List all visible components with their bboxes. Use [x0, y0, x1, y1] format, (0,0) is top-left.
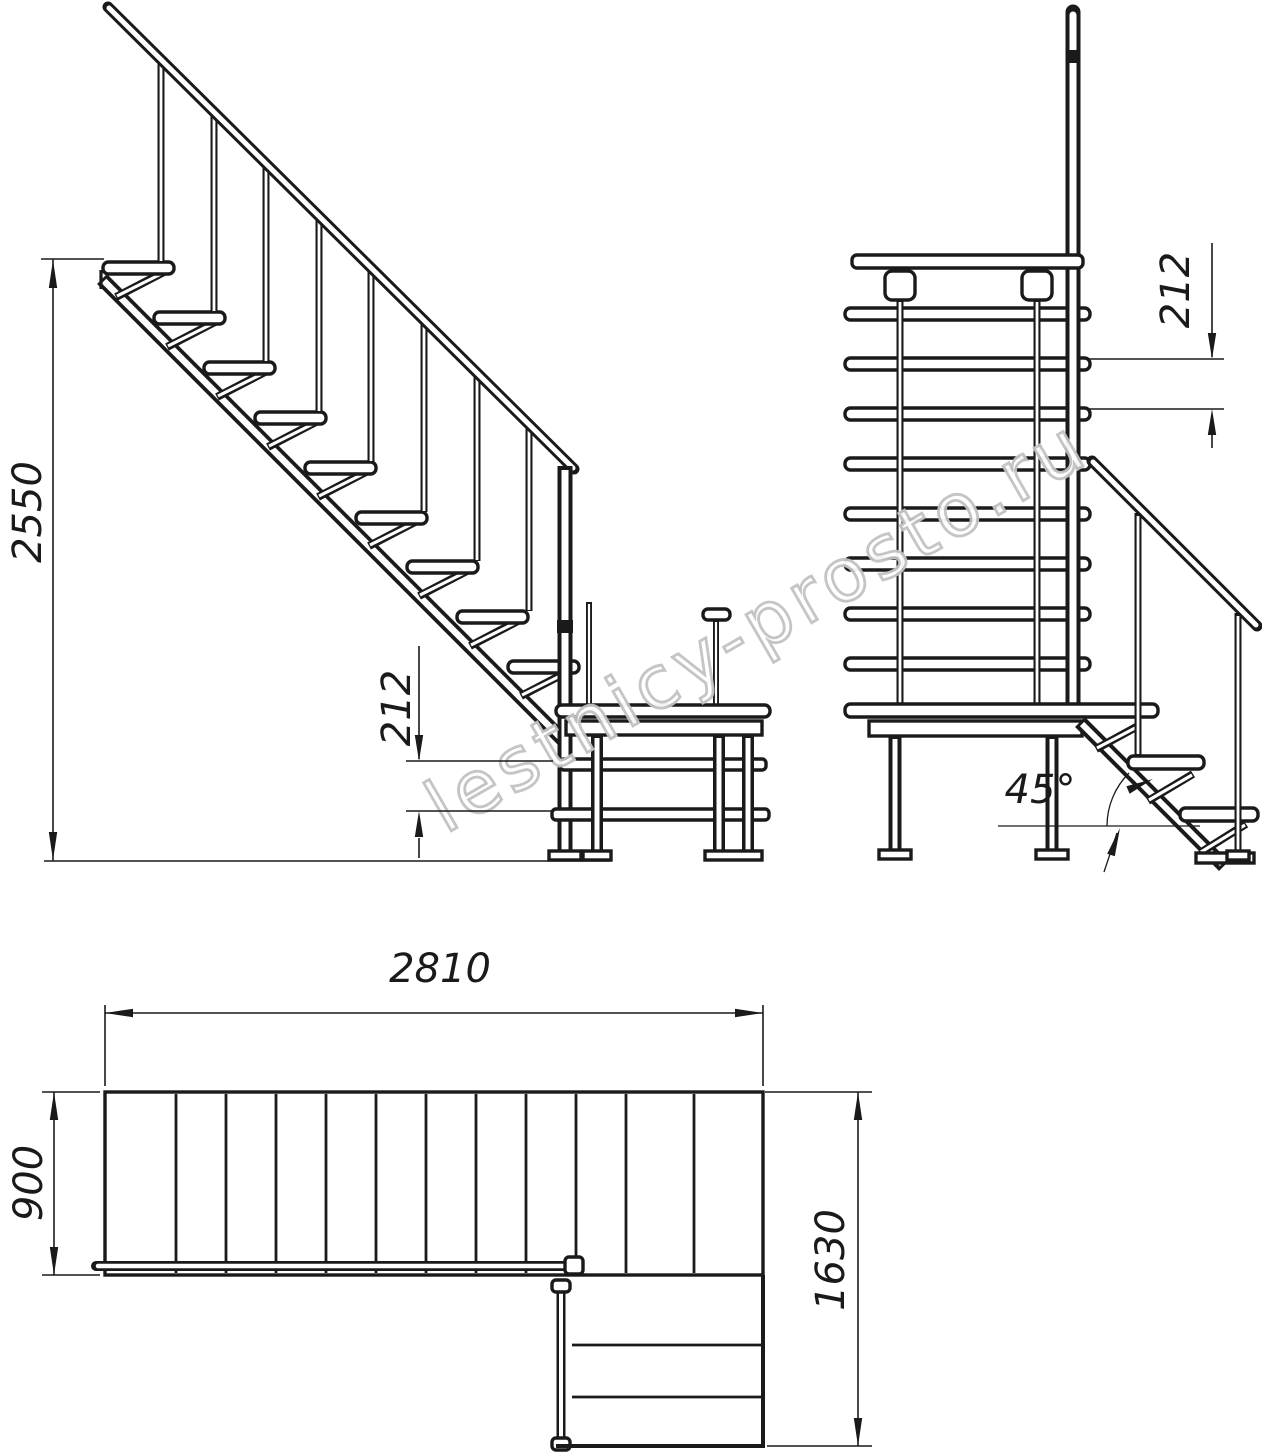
- handrail-side-view: [108, 7, 574, 469]
- tread-braces: [116, 272, 569, 696]
- dim-label-riser-front: 212: [1153, 252, 1199, 328]
- dim-label-total-height: 2550: [5, 461, 51, 563]
- dimension-212-front: 212: [1086, 243, 1224, 448]
- staircase-technical-drawing: lestnicy-prosto.ru 2550 212 212 45°: [0, 0, 1262, 1455]
- dim-label-riser-side: 212: [374, 670, 420, 746]
- deck-plate: [852, 255, 1083, 300]
- dim-label-plan-depth: 1630: [808, 1209, 854, 1311]
- plan-view: [96, 1092, 765, 1450]
- dimension-900: 900: [6, 1092, 100, 1275]
- rail-pole-and-stringer-edge: [1066, 12, 1080, 710]
- treads-side-view: [103, 262, 579, 673]
- newel-post: [557, 466, 573, 854]
- drawing-canvas: lestnicy-prosto.ru 2550 212 212 45°: [0, 0, 1262, 1455]
- dim-label-plan-length: 2810: [389, 946, 491, 992]
- dim-label-plan-width: 900: [6, 1145, 52, 1221]
- dim-label-angle: 45°: [1005, 767, 1076, 813]
- dimension-2810: 2810: [105, 946, 763, 1086]
- dimension-2550: 2550: [5, 259, 104, 861]
- plan-upper-flight: [105, 1092, 763, 1275]
- plan-lower-flight: [556, 1275, 765, 1446]
- landing-platform-front: [845, 704, 1158, 859]
- lower-flight: [1080, 461, 1258, 866]
- dimension-1630: 1630: [765, 1092, 872, 1446]
- plan-handrail: [96, 1257, 583, 1450]
